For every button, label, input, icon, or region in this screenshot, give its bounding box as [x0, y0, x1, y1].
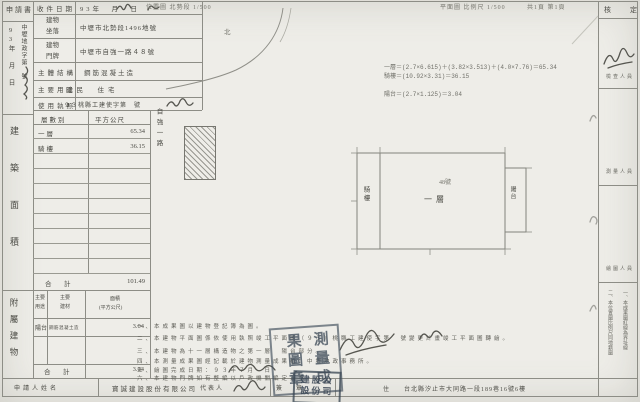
- residence-label: 住: [383, 384, 389, 393]
- section-draftsman-label: 繪圖人員: [606, 265, 634, 272]
- survey-result-document: 申請書 93年 月 日 中壢地政字第 號 建築面積 附屬建物 收件日期 93年 …: [0, 0, 640, 402]
- application-label: 申請書: [6, 5, 33, 15]
- handwritten-note-fill: [418, 330, 444, 342]
- road-name-label: 自強一路: [153, 108, 163, 162]
- right-panel-divider: [598, 1, 599, 397]
- applicant-label: 申請人姓名: [14, 383, 59, 392]
- seam-mark: [588, 212, 598, 226]
- plan-arcade-label: 騎樓: [360, 186, 370, 216]
- border-right: [637, 1, 638, 397]
- annex-header-use: 主要用途: [35, 294, 47, 312]
- panel-line: [599, 282, 637, 283]
- section-checker-label: 檢查人員: [606, 73, 634, 80]
- annex-header-area-unit: (平方公尺): [99, 304, 122, 311]
- handwritten-checker-signature: [602, 48, 636, 70]
- site-label: 建物坐落: [46, 15, 61, 37]
- address-label: 建物門牌: [46, 40, 61, 62]
- building-area-label: 建築面積: [8, 126, 21, 286]
- subject-parcel-hatch: [184, 126, 216, 180]
- section-surveyor-label: 測量人員: [606, 168, 634, 175]
- representative-label: 代表人: [200, 383, 224, 392]
- receipt-date-label: 收件日期: [37, 3, 75, 13]
- annex-row-use: 陽台: [35, 323, 47, 332]
- adjacent-sheet-line: [572, 16, 598, 44]
- annex-line: [33, 318, 150, 319]
- receipt-date-vertical: 93年 月 日: [5, 27, 15, 113]
- annex-row-material: 鋼筋混凝土造: [49, 325, 79, 331]
- area-total-value: 101.49: [103, 278, 145, 285]
- seam-mark: [588, 110, 598, 124]
- footer-vline: [98, 378, 99, 397]
- strip-line: [2, 114, 33, 115]
- handwritten-month: [116, 3, 132, 12]
- area-row-floor: 一層: [38, 128, 55, 138]
- panel-line: [599, 18, 637, 19]
- area-table-header-sqm: 平方公尺: [95, 114, 125, 124]
- annex-total-label: 合 計: [44, 366, 73, 376]
- table-line: [33, 290, 150, 291]
- area-row-value: 36.15: [105, 143, 145, 150]
- annex-vline: [47, 290, 48, 364]
- formula-arcade: 騎樓＝(10.92×3.31)＝36.15: [384, 71, 469, 80]
- plan-house-number: 48號: [439, 177, 451, 186]
- strip-line: [2, 21, 33, 22]
- annex-line: [33, 336, 150, 337]
- border-left: [2, 1, 3, 397]
- applicant-name: 寶誠建設股份有限公司: [112, 383, 197, 393]
- panel-line: [599, 185, 637, 186]
- site-value: 中壢市北勢段1496地號: [80, 22, 157, 32]
- area-table-header-floor: 層數別: [41, 114, 67, 124]
- license-value: ９３桃縣工建使字第 號: [64, 100, 141, 109]
- area-row-floor: 騎樓: [38, 143, 55, 153]
- road-curve: [166, 8, 283, 89]
- area-total-label: 合 計: [45, 278, 74, 288]
- plan-balcony-label: 陽台: [508, 186, 517, 212]
- annex-building-label: 附屬建物: [8, 298, 20, 376]
- handwritten-representative: [232, 380, 266, 395]
- annex-line: [33, 364, 150, 365]
- company-seal: 建股公 設份司: [292, 370, 341, 402]
- panel-note-1: 一、本成果圖紅線為界址線: [621, 290, 628, 392]
- annex-header-area: 面積: [110, 295, 120, 302]
- annex-vline: [85, 290, 86, 378]
- panel-line: [599, 88, 637, 89]
- residence-address: 台北縣汐止市大同路一段189巷16號6樓: [404, 384, 526, 393]
- seam-mark: [588, 300, 598, 314]
- approval-label: 核 定: [604, 5, 640, 15]
- annex-header-material: 主要建材: [60, 294, 72, 312]
- strip-line: [2, 290, 33, 291]
- use-value: 國民 住宅: [66, 84, 119, 94]
- formula-balcony: 陽台＝(2.7×1.125)＝3.04: [384, 89, 462, 98]
- road-curve-branch: [280, 8, 291, 42]
- panel-note-2: 二、本位置圖比例尺同地籍圖: [606, 290, 613, 392]
- note-1: 一、本成果圖以建物登記簿為圖。: [137, 322, 265, 330]
- plan-floor-label: 一層: [424, 194, 448, 205]
- address-value: 中壢市自強一路４８號: [80, 46, 155, 56]
- handwritten-inspection-marks: [336, 328, 398, 358]
- formula-floor1: 一層＝(2.7×6.615)＋(3.82×3.513)＋(4.0×7.76)＝6…: [384, 62, 557, 71]
- area-row-value: 65.34: [105, 128, 145, 135]
- structure-value: 鋼筋混凝土造: [84, 67, 135, 77]
- company-seal-row2: 設份司: [295, 385, 339, 398]
- structure-label: 主體結構: [38, 67, 76, 77]
- handwritten-doc-number: [21, 66, 31, 100]
